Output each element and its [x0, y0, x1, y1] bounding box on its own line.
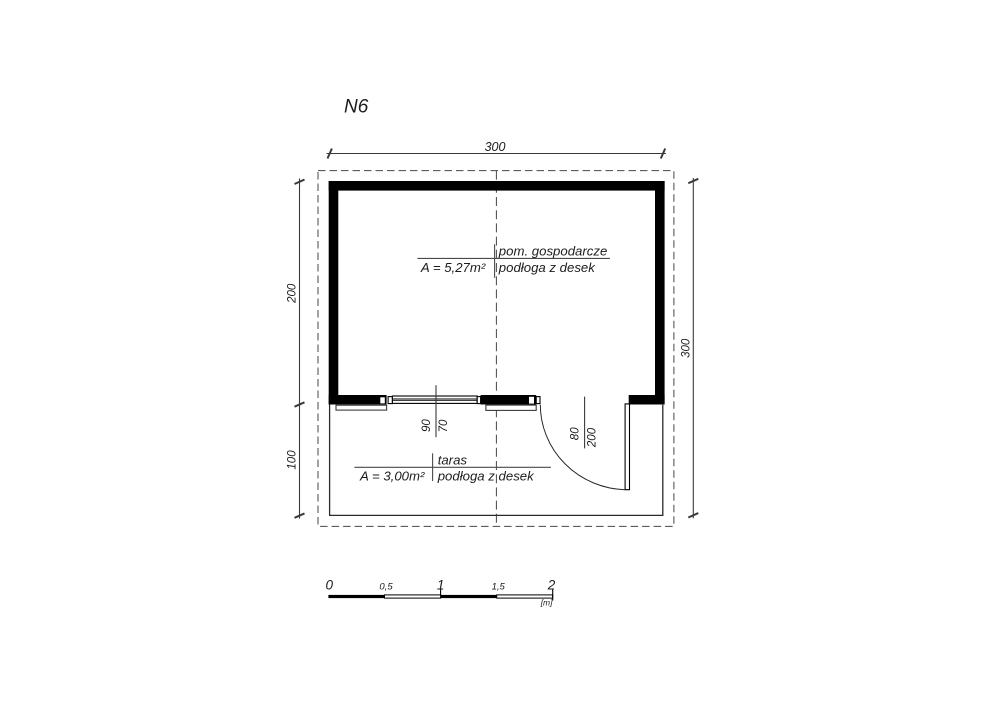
svg-text:90: 90 — [421, 419, 433, 432]
svg-text:[m]: [m] — [540, 598, 553, 608]
svg-text:N6: N6 — [344, 97, 369, 118]
svg-text:podłoga z desek: podłoga z desek — [498, 260, 596, 275]
svg-text:1: 1 — [437, 578, 445, 593]
svg-text:2: 2 — [547, 578, 556, 593]
svg-text:pom. gospodarcze: pom. gospodarcze — [498, 244, 608, 259]
svg-text:100: 100 — [287, 450, 299, 470]
svg-text:200: 200 — [287, 283, 299, 304]
svg-text:0: 0 — [326, 578, 334, 593]
svg-text:A = 3,00m²: A = 3,00m² — [359, 469, 425, 484]
svg-text:taras: taras — [438, 453, 468, 468]
svg-text:300: 300 — [485, 140, 506, 154]
svg-text:300: 300 — [680, 338, 692, 358]
svg-text:podłoga z desek: podłoga z desek — [437, 469, 535, 484]
svg-text:200: 200 — [586, 427, 598, 448]
svg-text:0,5: 0,5 — [379, 582, 393, 593]
svg-text:80: 80 — [569, 427, 581, 440]
svg-text:1,5: 1,5 — [492, 582, 506, 593]
svg-text:A = 5,27m²: A = 5,27m² — [420, 260, 486, 275]
svg-text:70: 70 — [438, 419, 450, 432]
